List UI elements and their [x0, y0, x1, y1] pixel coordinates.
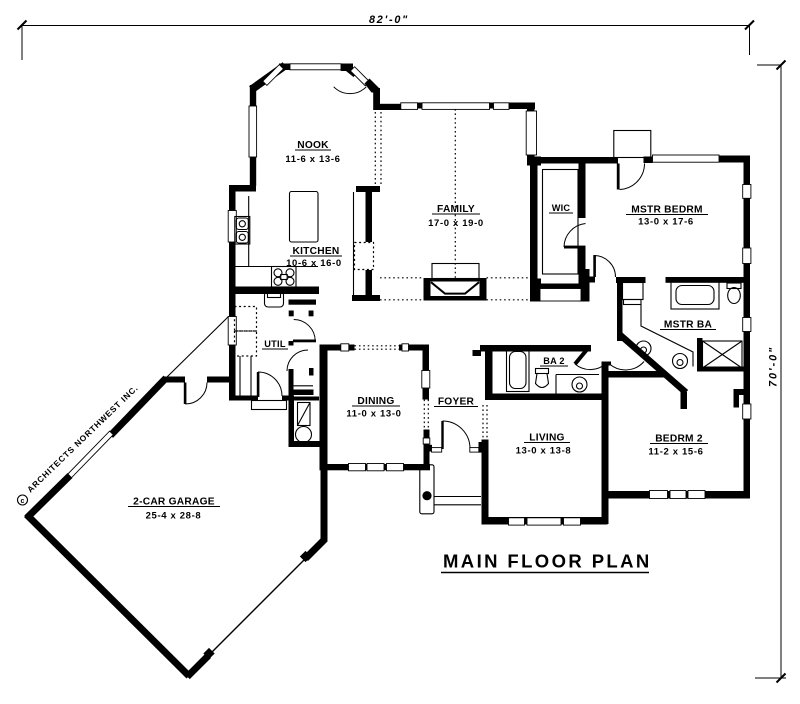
- svg-text:17-0 x 19-0: 17-0 x 19-0: [428, 218, 484, 229]
- svg-text:11-0 x 13-0: 11-0 x 13-0: [346, 409, 401, 420]
- svg-text:BEDRM 2: BEDRM 2: [655, 434, 703, 445]
- svg-text:82'-0": 82'-0": [369, 14, 409, 26]
- svg-text:25-4 x 28-8: 25-4 x 28-8: [146, 511, 202, 522]
- svg-text:MAIN FLOOR PLAN: MAIN FLOOR PLAN: [443, 551, 652, 572]
- svg-text:UTIL: UTIL: [264, 339, 286, 349]
- svg-text:2-CAR GARAGE: 2-CAR GARAGE: [133, 497, 215, 508]
- svg-text:13-0 x 13-8: 13-0 x 13-8: [516, 446, 572, 457]
- svg-text:WIC: WIC: [552, 203, 571, 213]
- svg-text:DINING: DINING: [357, 396, 394, 407]
- svg-text:FAMILY: FAMILY: [437, 204, 475, 215]
- svg-text:c: c: [21, 498, 25, 505]
- svg-text:13-0 x 17-6: 13-0 x 17-6: [638, 217, 694, 228]
- svg-text:70'-0": 70'-0": [768, 346, 780, 387]
- svg-text:MSTR BA: MSTR BA: [664, 320, 713, 331]
- svg-text:LIVING: LIVING: [529, 433, 564, 444]
- svg-text:FOYER: FOYER: [438, 397, 475, 408]
- svg-text:11-2 x 15-6: 11-2 x 15-6: [648, 447, 703, 458]
- svg-text:MSTR BEDRM: MSTR BEDRM: [631, 205, 703, 216]
- svg-text:11-6 x 13-6: 11-6 x 13-6: [285, 154, 340, 165]
- svg-text:KITCHEN: KITCHEN: [292, 246, 339, 257]
- svg-text:BA 2: BA 2: [543, 356, 565, 366]
- svg-text:10-6 x 16-0: 10-6 x 16-0: [286, 258, 342, 269]
- svg-text:NOOK: NOOK: [297, 140, 329, 151]
